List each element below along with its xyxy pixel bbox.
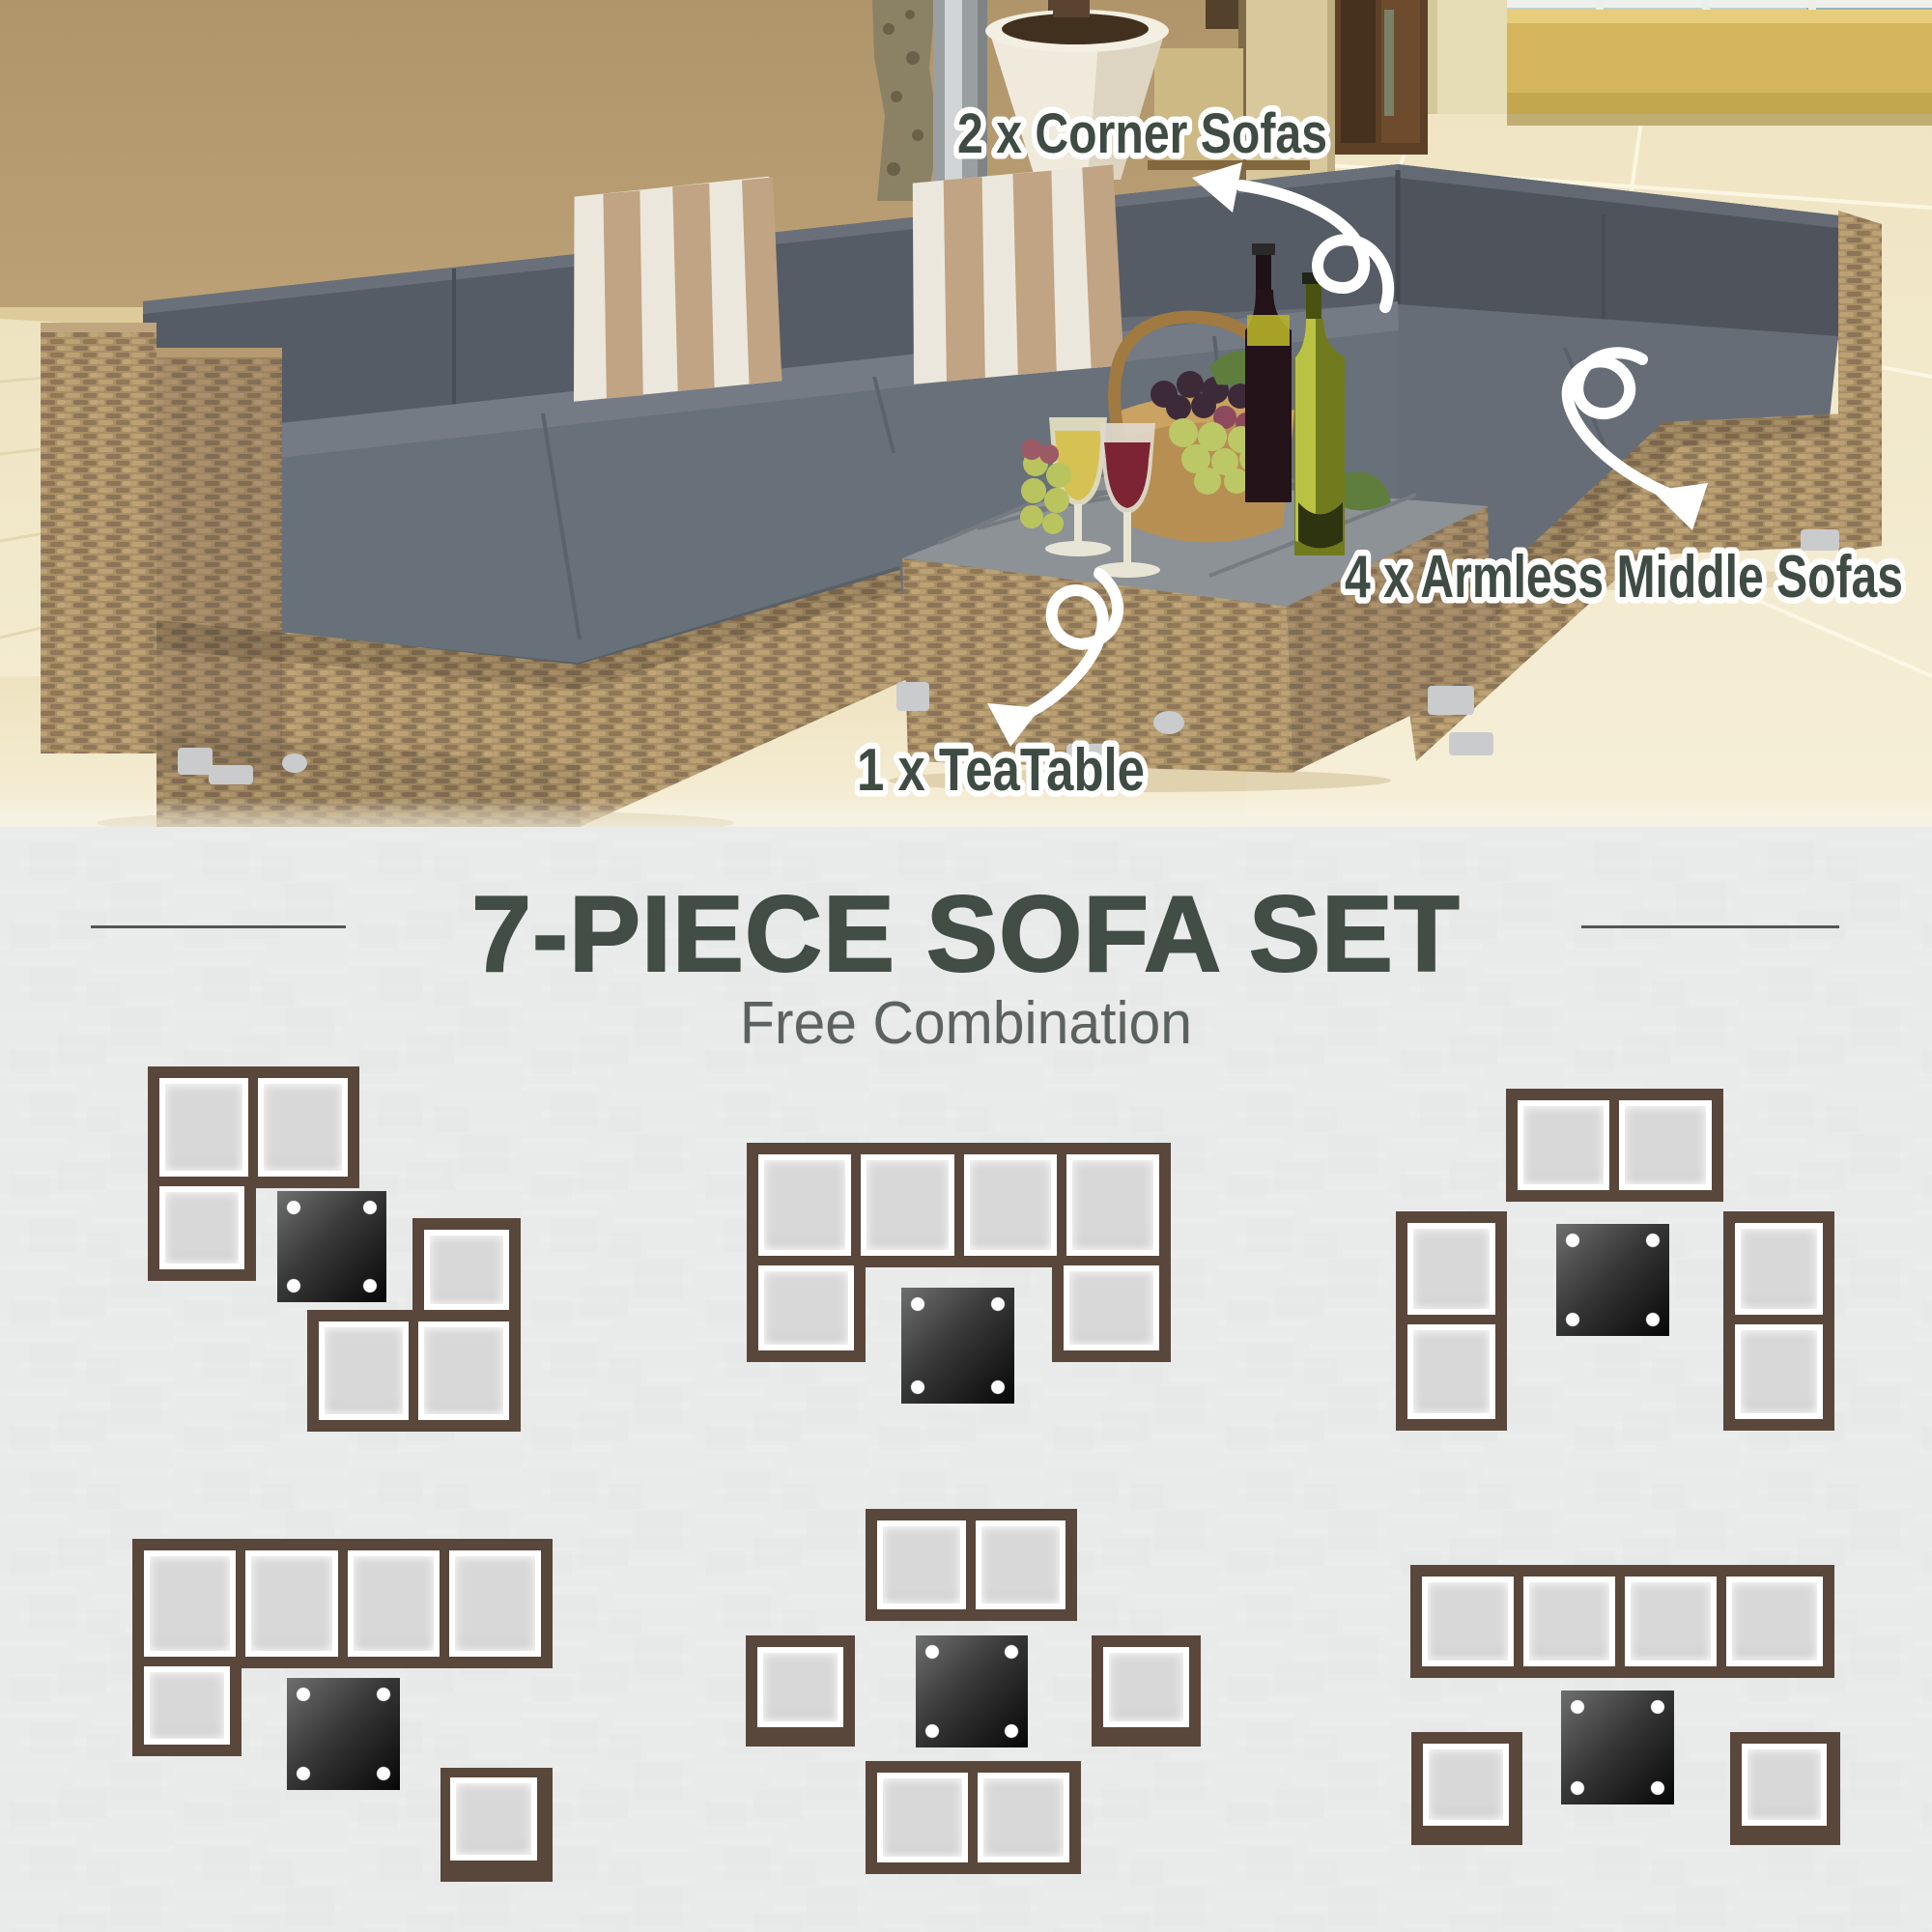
svg-text:1 x TeaTable: 1 x TeaTable: [857, 737, 1145, 804]
svg-text:2 x Corner Sofas: 2 x Corner Sofas: [957, 102, 1327, 165]
svg-text:4 x Armless Middle Sofas: 4 x Armless Middle Sofas: [1345, 544, 1903, 611]
